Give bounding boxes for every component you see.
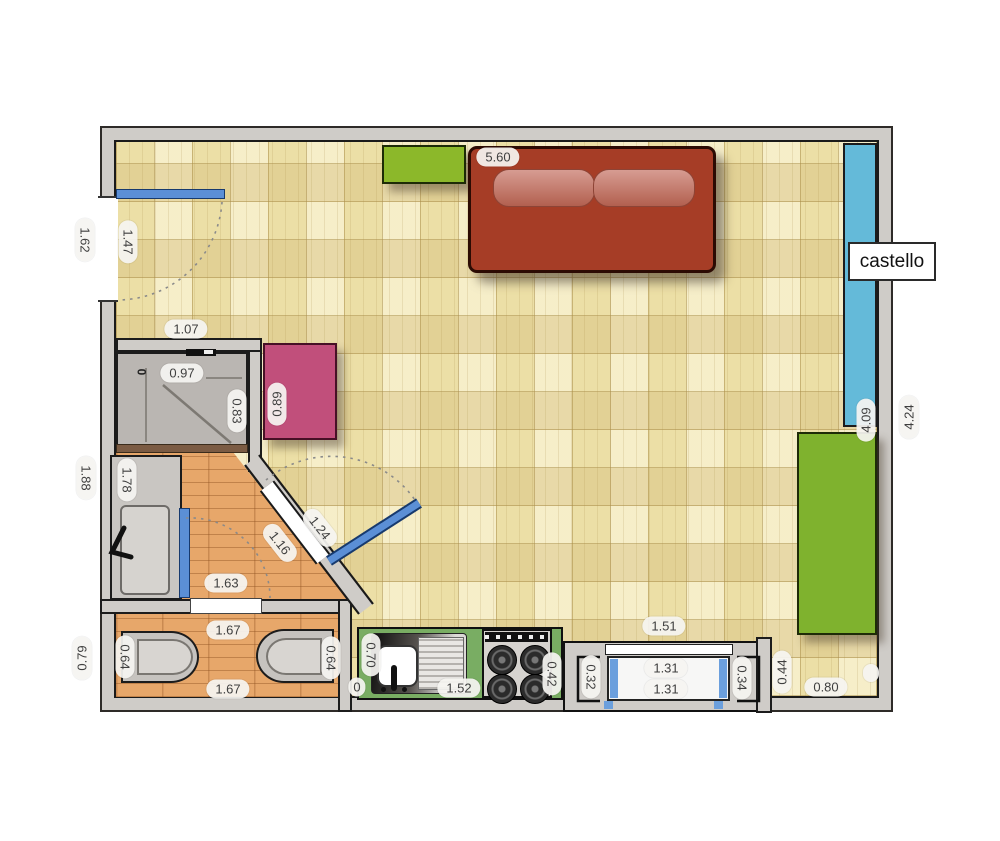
floor-plan: castello 5.60 1.62 1.47 1.07 0.97 0.83 0… [0,0,1000,841]
dim-label: 0.79 [73,636,92,679]
dim-label: 1.67 [206,680,249,699]
stove [482,629,552,698]
burner-icon [487,674,517,704]
dim-label: 0.97 [160,364,203,383]
bathroom-right-wall [248,350,262,472]
sideboard-top [382,145,466,184]
dim-label: 1.51 [642,617,685,636]
dim-label: 1.78 [118,458,137,501]
dim-label: 0.83 [228,389,247,432]
dim-label: 0.64 [116,635,135,678]
dim-label: 1.47 [119,220,138,263]
window-frame-left [610,659,618,698]
entry-door-opening [98,196,118,302]
dim-label: 0 [133,369,150,376]
dim-label: 5.60 [476,148,519,167]
dim-label: 4.09 [857,398,876,441]
clipped-label [863,664,879,682]
window-frame-right [719,659,727,698]
dim-label: 1.52 [437,679,480,698]
window-tick-right [714,701,723,709]
sofa-cushion-right [593,169,695,207]
dim-label: 0 [348,678,365,697]
dim-label: 1.31 [644,659,687,678]
washbasin-bowl [120,505,170,595]
toilet-bowl [266,638,322,675]
dim-label: 0.64 [322,636,341,679]
dim-label: 1.63 [204,574,247,593]
bathroom-door-opening [190,598,262,614]
wardrobe-right [797,432,877,635]
dim-label: 1.07 [164,320,207,339]
shower-step [116,444,248,453]
dim-label: 4.24 [900,395,919,438]
burner-icon [487,645,517,675]
dim-label: 0.89 [268,382,287,425]
dim-label: 0.34 [733,656,752,699]
sofa-cushion-left [493,169,595,207]
bidet-bowl [137,639,193,675]
entry-door-leaf [116,189,225,199]
dim-label: 1.31 [644,680,687,699]
window-tick-left [604,701,613,709]
dim-label: 1.67 [206,621,249,640]
shower-mixer-icon [186,349,216,356]
shower-mixer-handle [204,350,213,354]
kitchen-faucet-dot-right [402,687,407,692]
bathroom-door-leaf [179,508,190,598]
dim-label: 0.80 [804,678,847,697]
dim-label: 1.88 [77,456,96,499]
dim-label: 1.62 [76,218,95,261]
dim-label: 0.32 [582,655,601,698]
dim-label: 0.70 [362,633,381,676]
dim-label: 0.42 [543,652,562,695]
kitchen-faucet-dot-left [381,687,386,692]
dim-label: 0.44 [773,650,792,693]
window-top-band [605,644,733,655]
stove-knob-strip [485,632,548,642]
kitchen-faucet-icon [391,665,397,691]
kitchen-sink-basin [377,645,418,687]
castello-label: castello [848,242,936,281]
step-wall [756,637,772,713]
loft-bed-castello [843,143,877,427]
